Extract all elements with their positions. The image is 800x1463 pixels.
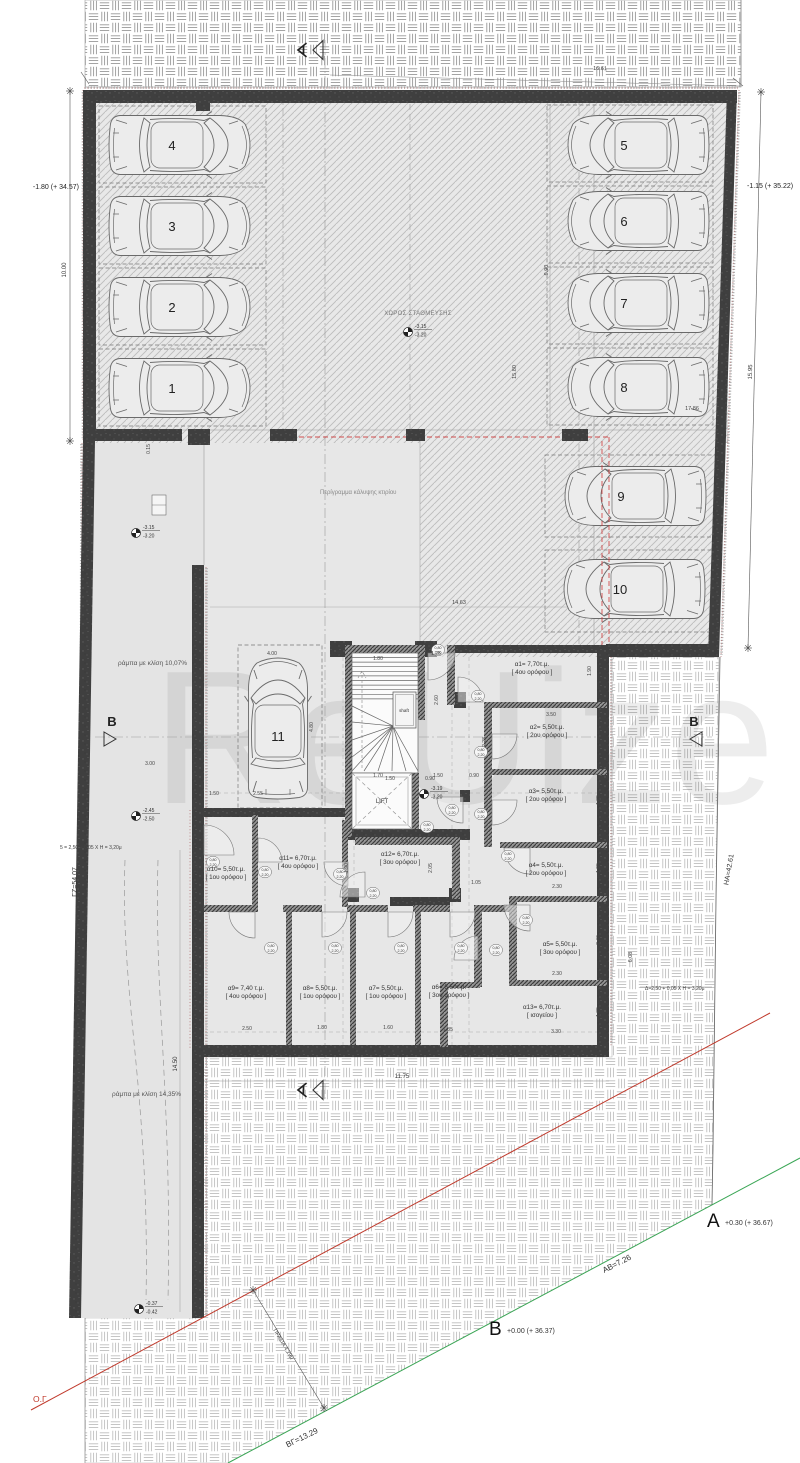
svg-text:2.40: 2.40	[596, 935, 602, 945]
svg-text:0,80: 0,80	[478, 810, 485, 814]
svg-text:11.75: 11.75	[395, 1074, 410, 1080]
svg-text:-0.37: -0.37	[146, 1301, 158, 1307]
svg-text:[ 2ου ορόφου ]: [ 2ου ορόφου ]	[526, 869, 567, 877]
svg-text:α5= 5,50τ.μ.: α5= 5,50τ.μ.	[543, 941, 578, 948]
svg-text:2,20: 2,20	[523, 921, 530, 925]
svg-text:1.90: 1.90	[587, 666, 593, 676]
svg-text:-1.80 (+ 34.57): -1.80 (+ 34.57)	[33, 184, 79, 191]
svg-text:α8= 5,50τ.μ.: α8= 5,50τ.μ.	[303, 985, 338, 992]
svg-text:2,20: 2,20	[262, 873, 269, 877]
svg-text:2,20: 2,20	[475, 697, 482, 701]
svg-text:2.95: 2.95	[194, 983, 200, 993]
svg-text:1.85: 1.85	[443, 1027, 453, 1033]
svg-text:1.80: 1.80	[373, 656, 383, 662]
svg-text:B: B	[107, 714, 116, 729]
svg-text:9: 9	[617, 489, 624, 504]
svg-text:2.28: 2.28	[482, 737, 488, 747]
svg-text:0,80: 0,80	[424, 823, 431, 827]
svg-text:0,80: 0,80	[475, 692, 482, 696]
svg-text:2,20: 2,20	[458, 949, 465, 953]
svg-text:-3.15: -3.15	[415, 324, 427, 330]
svg-text:2,20: 2,20	[478, 815, 485, 819]
svg-text:1.90: 1.90	[344, 863, 350, 873]
svg-text:0.90: 0.90	[425, 776, 435, 782]
svg-text:3: 3	[168, 219, 175, 234]
svg-text:6.08: 6.08	[628, 952, 634, 963]
svg-text:3.00: 3.00	[145, 761, 155, 767]
svg-text:2,20: 2,20	[478, 753, 485, 757]
svg-text:[ 1ου ορόφου ]: [ 1ου ορόφου ]	[300, 992, 341, 1000]
svg-text:0.15: 0.15	[146, 444, 152, 454]
svg-text:2,20: 2,20	[449, 811, 456, 815]
svg-text:-3.20: -3.20	[431, 795, 443, 801]
svg-text:2,20: 2,20	[332, 949, 339, 953]
svg-text:[ 3ου ορόφου ]: [ 3ου ορόφου ]	[429, 991, 470, 999]
svg-text:0,80: 0,80	[337, 870, 344, 874]
svg-text:ράμπα με κλίση 14,35%: ράμπα με κλίση 14,35%	[112, 1090, 181, 1098]
svg-text:α10= 5,50τ.μ.: α10= 5,50τ.μ.	[207, 866, 245, 873]
svg-text:[ 4ου ορόφου ]: [ 4ου ορόφου ]	[512, 668, 553, 676]
svg-text:-3.15: -3.15	[143, 525, 155, 531]
svg-text:0,80: 0,80	[268, 944, 275, 948]
svg-text:2,20: 2,20	[424, 828, 431, 832]
svg-text:[ 3ου ορόφου ]: [ 3ου ορόφου ]	[540, 948, 581, 956]
svg-text:B: B	[489, 1319, 502, 1340]
svg-text:2.55: 2.55	[253, 791, 263, 797]
svg-text:B: B	[689, 714, 698, 729]
svg-text:-3.20: -3.20	[143, 534, 155, 540]
svg-text:16.61: 16.61	[593, 66, 607, 72]
svg-text:-3.20: -3.20	[415, 333, 427, 339]
svg-text:α6= 5,50τ.μ.: α6= 5,50τ.μ.	[432, 984, 467, 991]
svg-text:1.85: 1.85	[596, 795, 602, 805]
svg-text:2,20: 2,20	[493, 951, 500, 955]
svg-text:shaft: shaft	[399, 708, 410, 713]
svg-text:α7= 5,50τ.μ.: α7= 5,50τ.μ.	[369, 985, 404, 992]
svg-text:4.80: 4.80	[309, 722, 315, 732]
svg-text:[ 4ου ορόφου ]: [ 4ου ορόφου ]	[278, 862, 319, 870]
svg-text:Περίγραμμα κάλυψης κτιρίου: Περίγραμμα κάλυψης κτιρίου	[320, 489, 396, 496]
svg-text:0.25: 0.25	[332, 651, 342, 657]
svg-text:ΓΖ=54.07: ΓΖ=54.07	[72, 867, 79, 897]
svg-text:2.60: 2.60	[434, 695, 440, 705]
svg-text:4: 4	[168, 138, 175, 153]
svg-text:[ 1ου ορόφου ]: [ 1ου ορόφου ]	[206, 873, 247, 881]
svg-text:α3= 5,50τ.μ.: α3= 5,50τ.μ.	[529, 788, 564, 795]
svg-text:2: 2	[168, 300, 175, 315]
svg-text:-2.50: -2.50	[143, 817, 155, 823]
svg-text:0,80: 0,80	[435, 646, 442, 650]
svg-text:0,80: 0,80	[523, 916, 530, 920]
svg-text:A: A	[707, 1211, 720, 1232]
svg-text:4.00: 4.00	[267, 651, 277, 657]
svg-text:3.30: 3.30	[551, 1029, 561, 1035]
svg-text:1.85: 1.85	[596, 1007, 602, 1017]
svg-text:-3.19: -3.19	[431, 786, 443, 792]
svg-text:0,80: 0,80	[449, 806, 456, 810]
svg-text:ράμπα με κλίση 10,07%: ράμπα με κλίση 10,07%	[118, 659, 187, 667]
svg-text:3.50: 3.50	[546, 712, 556, 718]
svg-text:2.30: 2.30	[552, 971, 562, 977]
svg-text:10: 10	[613, 582, 627, 597]
svg-text:8: 8	[620, 380, 627, 395]
svg-text:α13= 6,70τ.μ.: α13= 6,70τ.μ.	[523, 1004, 561, 1011]
svg-text:3.30: 3.30	[400, 839, 410, 845]
svg-text:[ 2ου ορόφου ]: [ 2ου ορόφου ]	[527, 731, 568, 739]
svg-text:[ 1ου ορόφου ]: [ 1ου ορόφου ]	[366, 992, 407, 1000]
svg-text:LIFT: LIFT	[376, 799, 389, 805]
svg-text:α9= 7,40 τ.μ.: α9= 7,40 τ.μ.	[228, 985, 264, 992]
svg-text:α1= 7,70τ.μ.: α1= 7,70τ.μ.	[515, 661, 550, 668]
svg-text:1: 1	[168, 381, 175, 396]
svg-text:0,80: 0,80	[398, 944, 405, 948]
svg-text:2,20: 2,20	[370, 894, 377, 898]
svg-text:2,20: 2,20	[505, 857, 512, 861]
svg-text:2.30: 2.30	[552, 884, 562, 890]
svg-text:5: 5	[620, 138, 627, 153]
svg-text:10.00: 10.00	[62, 262, 68, 278]
svg-text:1.95: 1.95	[596, 863, 602, 873]
svg-text:9.90: 9.90	[544, 265, 550, 276]
svg-text:α12= 6,70τ.μ.: α12= 6,70τ.μ.	[381, 851, 419, 858]
svg-text:+0.00 (+ 36.37): +0.00 (+ 36.37)	[507, 1328, 555, 1335]
svg-text:14.50: 14.50	[173, 1056, 179, 1072]
svg-text:4.05: 4.05	[524, 646, 534, 652]
svg-text:α4= 5,50τ.μ.: α4= 5,50τ.μ.	[529, 862, 564, 869]
svg-text:2.70: 2.70	[194, 863, 200, 873]
svg-text:2.50: 2.50	[242, 1026, 252, 1032]
svg-text:17.86: 17.86	[685, 406, 699, 412]
svg-text:[ 4ου ορόφου ]: [ 4ου ορόφου ]	[226, 992, 267, 1000]
svg-text:[ ισογείου ]: [ ισογείου ]	[527, 1011, 557, 1019]
svg-text:1.05: 1.05	[471, 880, 481, 886]
svg-text:+0.30 (+ 36.67): +0.30 (+ 36.67)	[725, 1220, 773, 1227]
svg-text:α11= 6,70τ.μ.: α11= 6,70τ.μ.	[279, 855, 317, 862]
svg-text:-2.45: -2.45	[143, 808, 155, 814]
svg-text:15.95: 15.95	[748, 364, 755, 380]
svg-text:2,20: 2,20	[398, 949, 405, 953]
svg-text:0,80: 0,80	[505, 852, 512, 856]
svg-text:-0.42: -0.42	[146, 1310, 158, 1316]
svg-text:1.80: 1.80	[317, 1025, 327, 1031]
svg-text:ΧΩΡΟΣ ΣΤΑΘΜΕΥΣΗΣ: ΧΩΡΟΣ ΣΤΑΘΜΕΥΣΗΣ	[384, 311, 452, 317]
svg-text:5 = 2,50 + 0,05 Χ Η = 3,20μ: 5 = 2,50 + 0,05 Χ Η = 3,20μ	[60, 845, 122, 851]
svg-text:Ο.Γ.: Ο.Γ.	[33, 1394, 48, 1404]
svg-text:0.90: 0.90	[469, 773, 479, 779]
svg-text:2,20: 2,20	[268, 949, 275, 953]
svg-text:15.80: 15.80	[512, 365, 518, 379]
svg-text:14.63: 14.63	[452, 600, 466, 606]
svg-text:0,80: 0,80	[493, 946, 500, 950]
svg-text:0,80: 0,80	[210, 858, 217, 862]
svg-text:7: 7	[620, 296, 627, 311]
svg-text:6: 6	[620, 214, 627, 229]
svg-text:0,80: 0,80	[370, 889, 377, 893]
svg-text:1.25: 1.25	[431, 651, 441, 657]
svg-text:0,80: 0,80	[458, 944, 465, 948]
svg-text:-1.15 (+ 35.22): -1.15 (+ 35.22)	[747, 183, 793, 190]
svg-text:0,80: 0,80	[262, 868, 269, 872]
svg-text:1.60: 1.60	[383, 1025, 393, 1031]
svg-text:2,20: 2,20	[337, 875, 344, 879]
svg-text:1.70: 1.70	[373, 773, 383, 779]
svg-text:2.05: 2.05	[428, 863, 434, 873]
svg-text:α2= 5,50τ.μ.: α2= 5,50τ.μ.	[530, 724, 565, 731]
svg-text:0,80: 0,80	[478, 748, 485, 752]
svg-text:0,80: 0,80	[332, 944, 339, 948]
svg-text:1.50: 1.50	[385, 776, 395, 782]
svg-text:1.50: 1.50	[209, 791, 219, 797]
svg-text:[ 2ου ορόφου ]: [ 2ου ορόφου ]	[526, 795, 567, 803]
svg-text:11: 11	[271, 729, 285, 744]
svg-text:[ 3ου ορόφου ]: [ 3ου ορόφου ]	[380, 858, 421, 866]
